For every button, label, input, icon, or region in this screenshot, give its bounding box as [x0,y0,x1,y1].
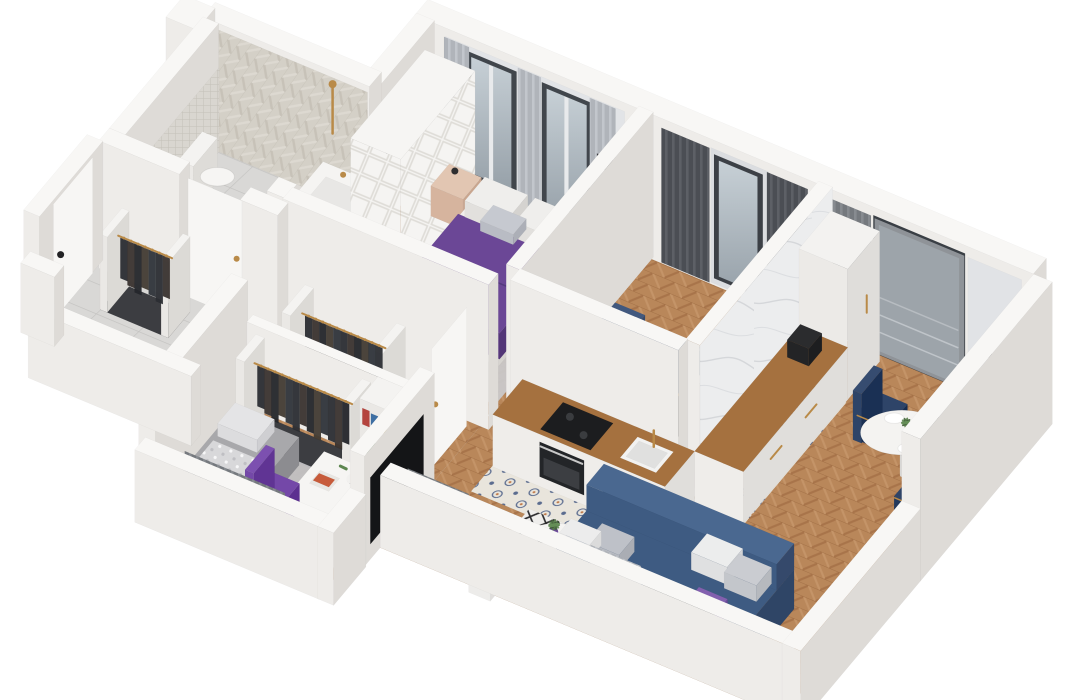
bookshelf-book-red [362,408,369,427]
bathtub-faucet-gold [340,172,346,178]
dining-plate-1 [884,413,903,423]
nightstand-lamp [451,168,458,175]
toilet-bowl [200,168,234,186]
bedroom-curtain-mid [518,68,541,212]
cooktop-burner-1 [566,413,574,421]
bathroom-door-handle-gold [234,256,240,262]
shower-head-gold [329,80,337,88]
kids-curtain-left [661,128,709,283]
entrance-door-handle-black [57,251,64,258]
bedroom-window-mullion-left [489,65,493,183]
floorplan-render-canvas [0,0,1069,700]
apartment-3d-floorplan [0,0,1069,700]
scene-root [21,0,1053,700]
cooktop-burner-2 [580,431,588,439]
wall-vestibule-south [21,251,64,346]
